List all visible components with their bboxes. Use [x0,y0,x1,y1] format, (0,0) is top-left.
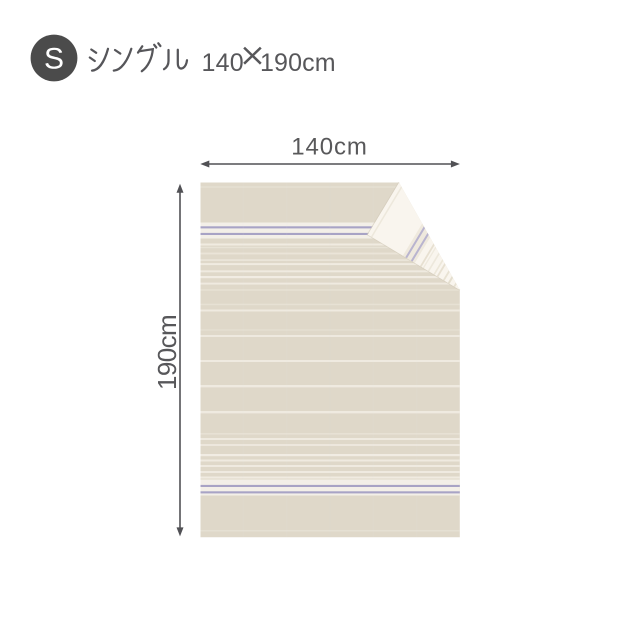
svg-text:140cm: 140cm [291,134,368,161]
svg-text:190cm: 190cm [260,49,336,77]
svg-text:S: S [44,42,64,75]
svg-text:190cm: 190cm [152,315,182,390]
svg-text:140: 140 [202,49,244,77]
